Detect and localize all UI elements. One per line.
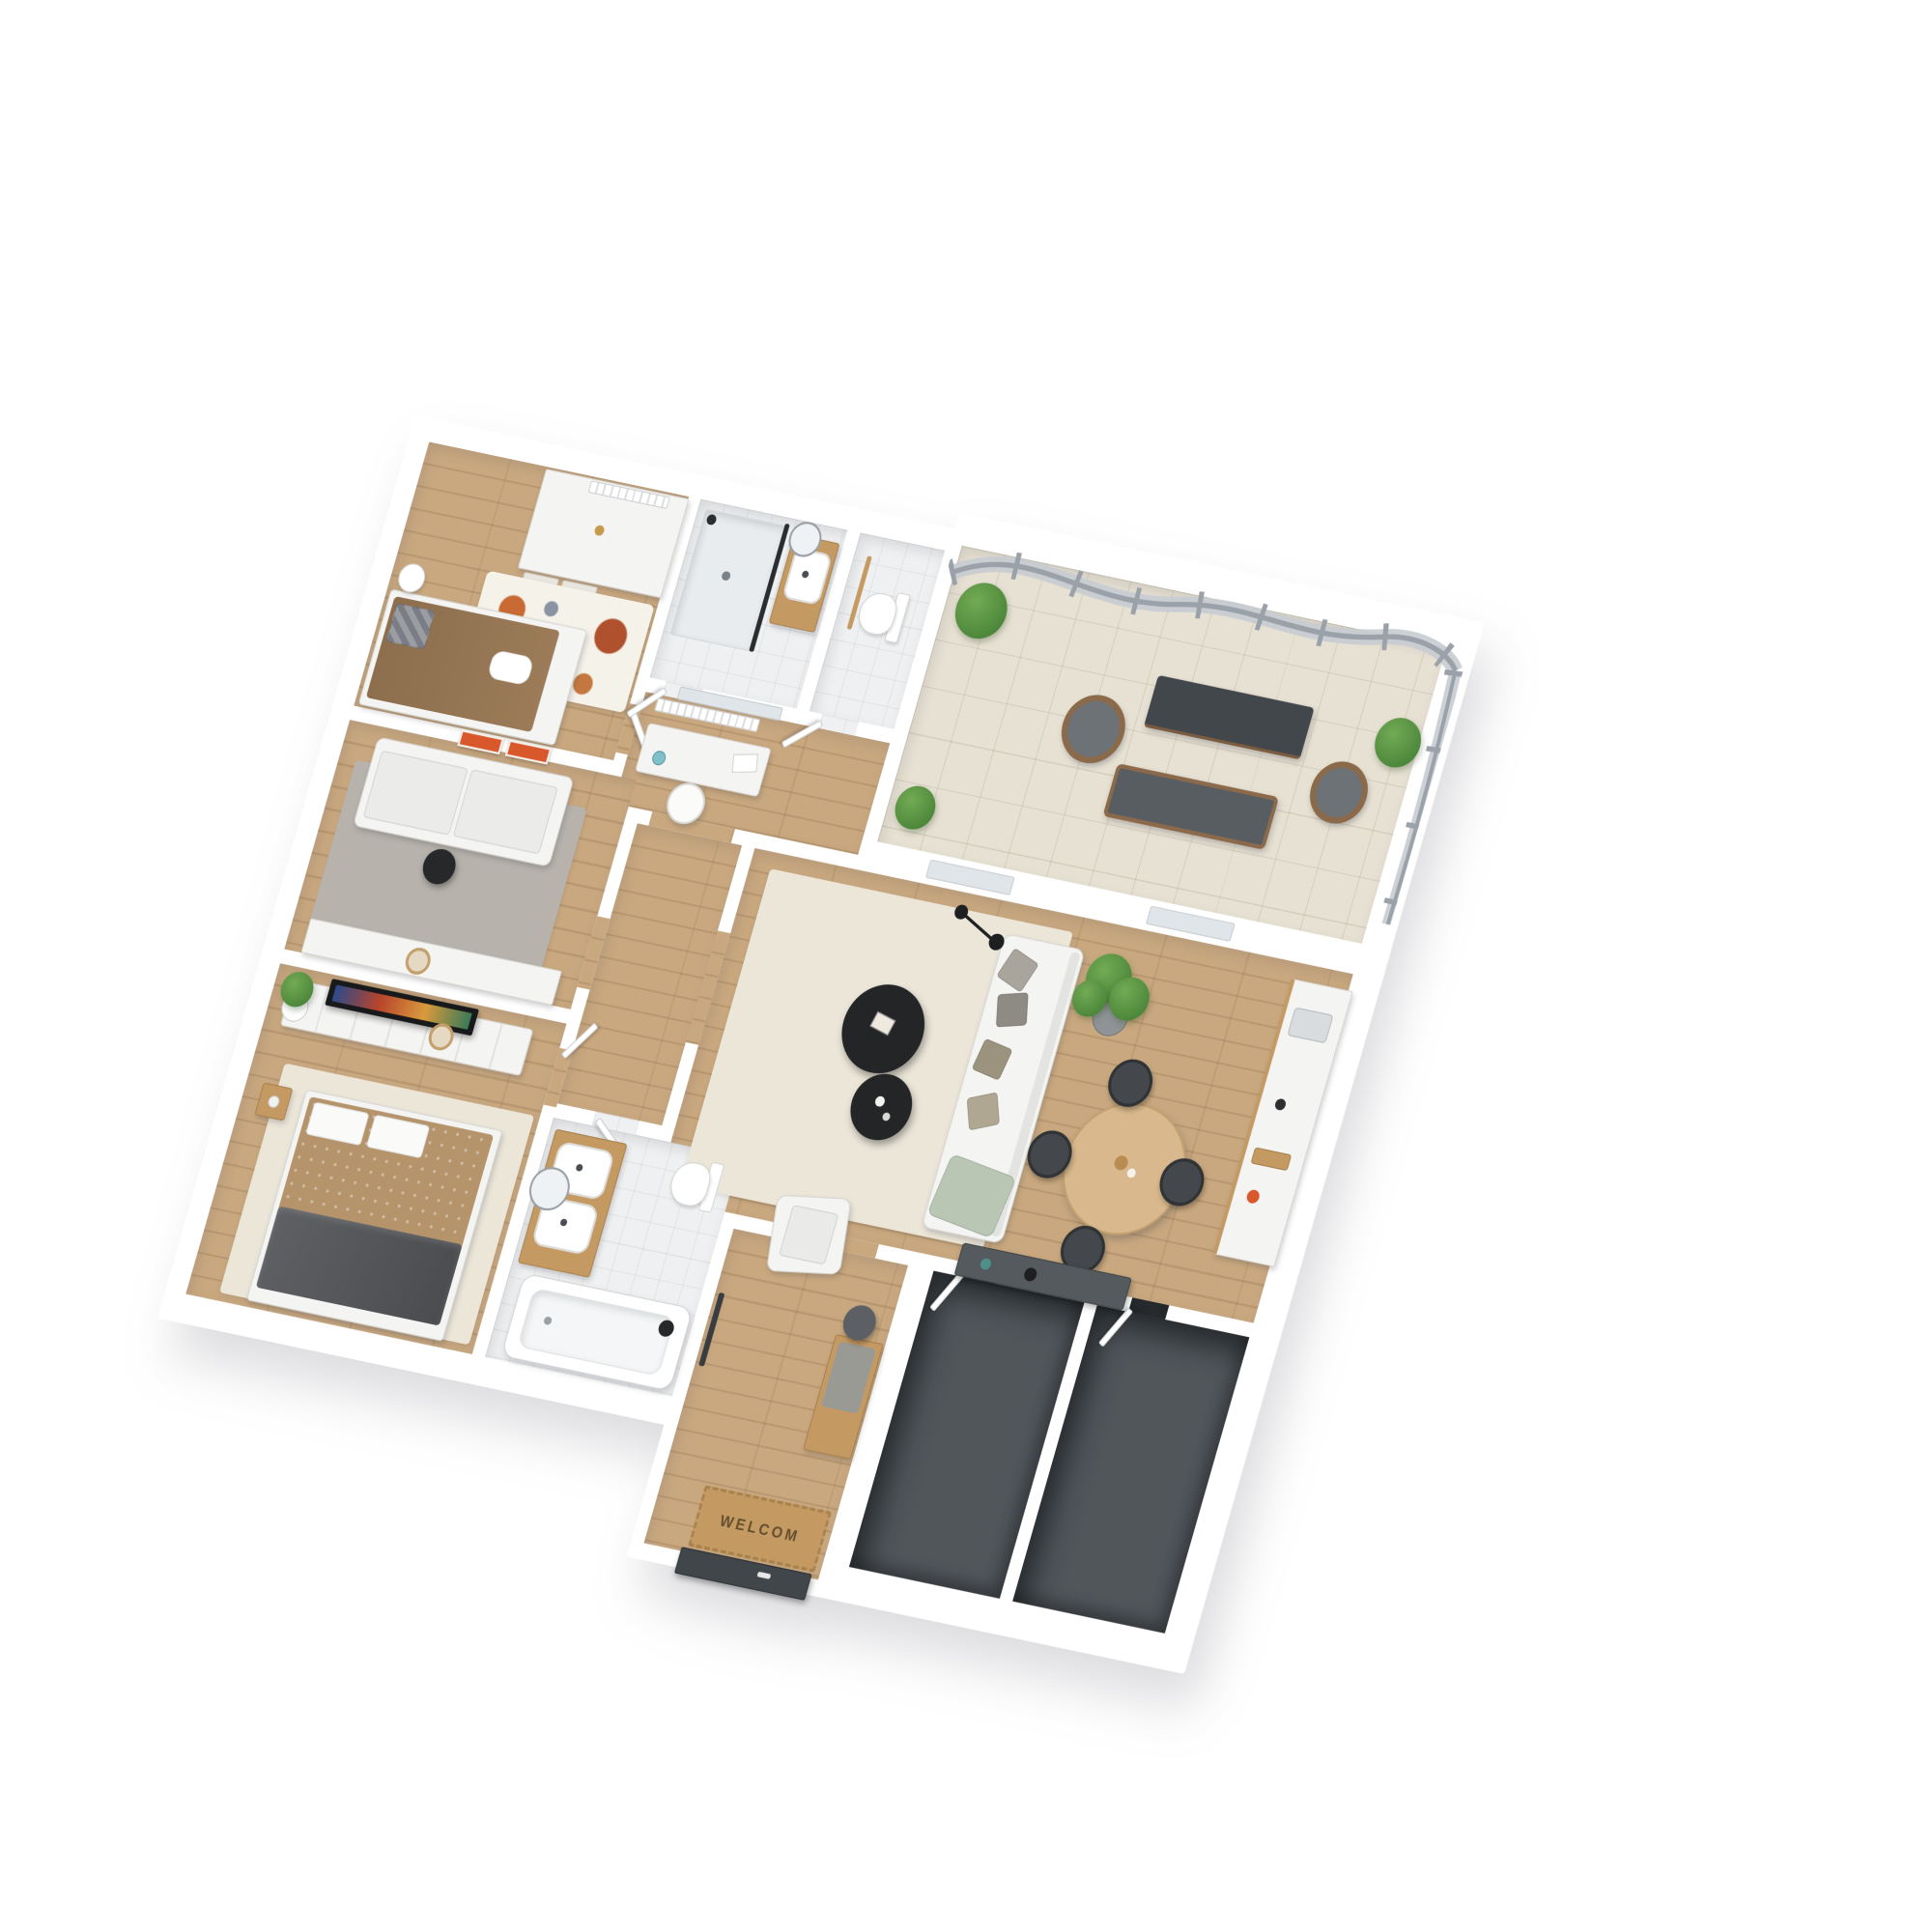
scatter-pillow bbox=[967, 1092, 1000, 1130]
floor-plan-page: WELCOM bbox=[0, 0, 1932, 1932]
scatter-pillow bbox=[996, 992, 1029, 1027]
floor-plan: WELCOM bbox=[117, 415, 1480, 1685]
floor-plan-3d-scene: WELCOM bbox=[0, 0, 1932, 1932]
desk-papers bbox=[731, 753, 758, 773]
